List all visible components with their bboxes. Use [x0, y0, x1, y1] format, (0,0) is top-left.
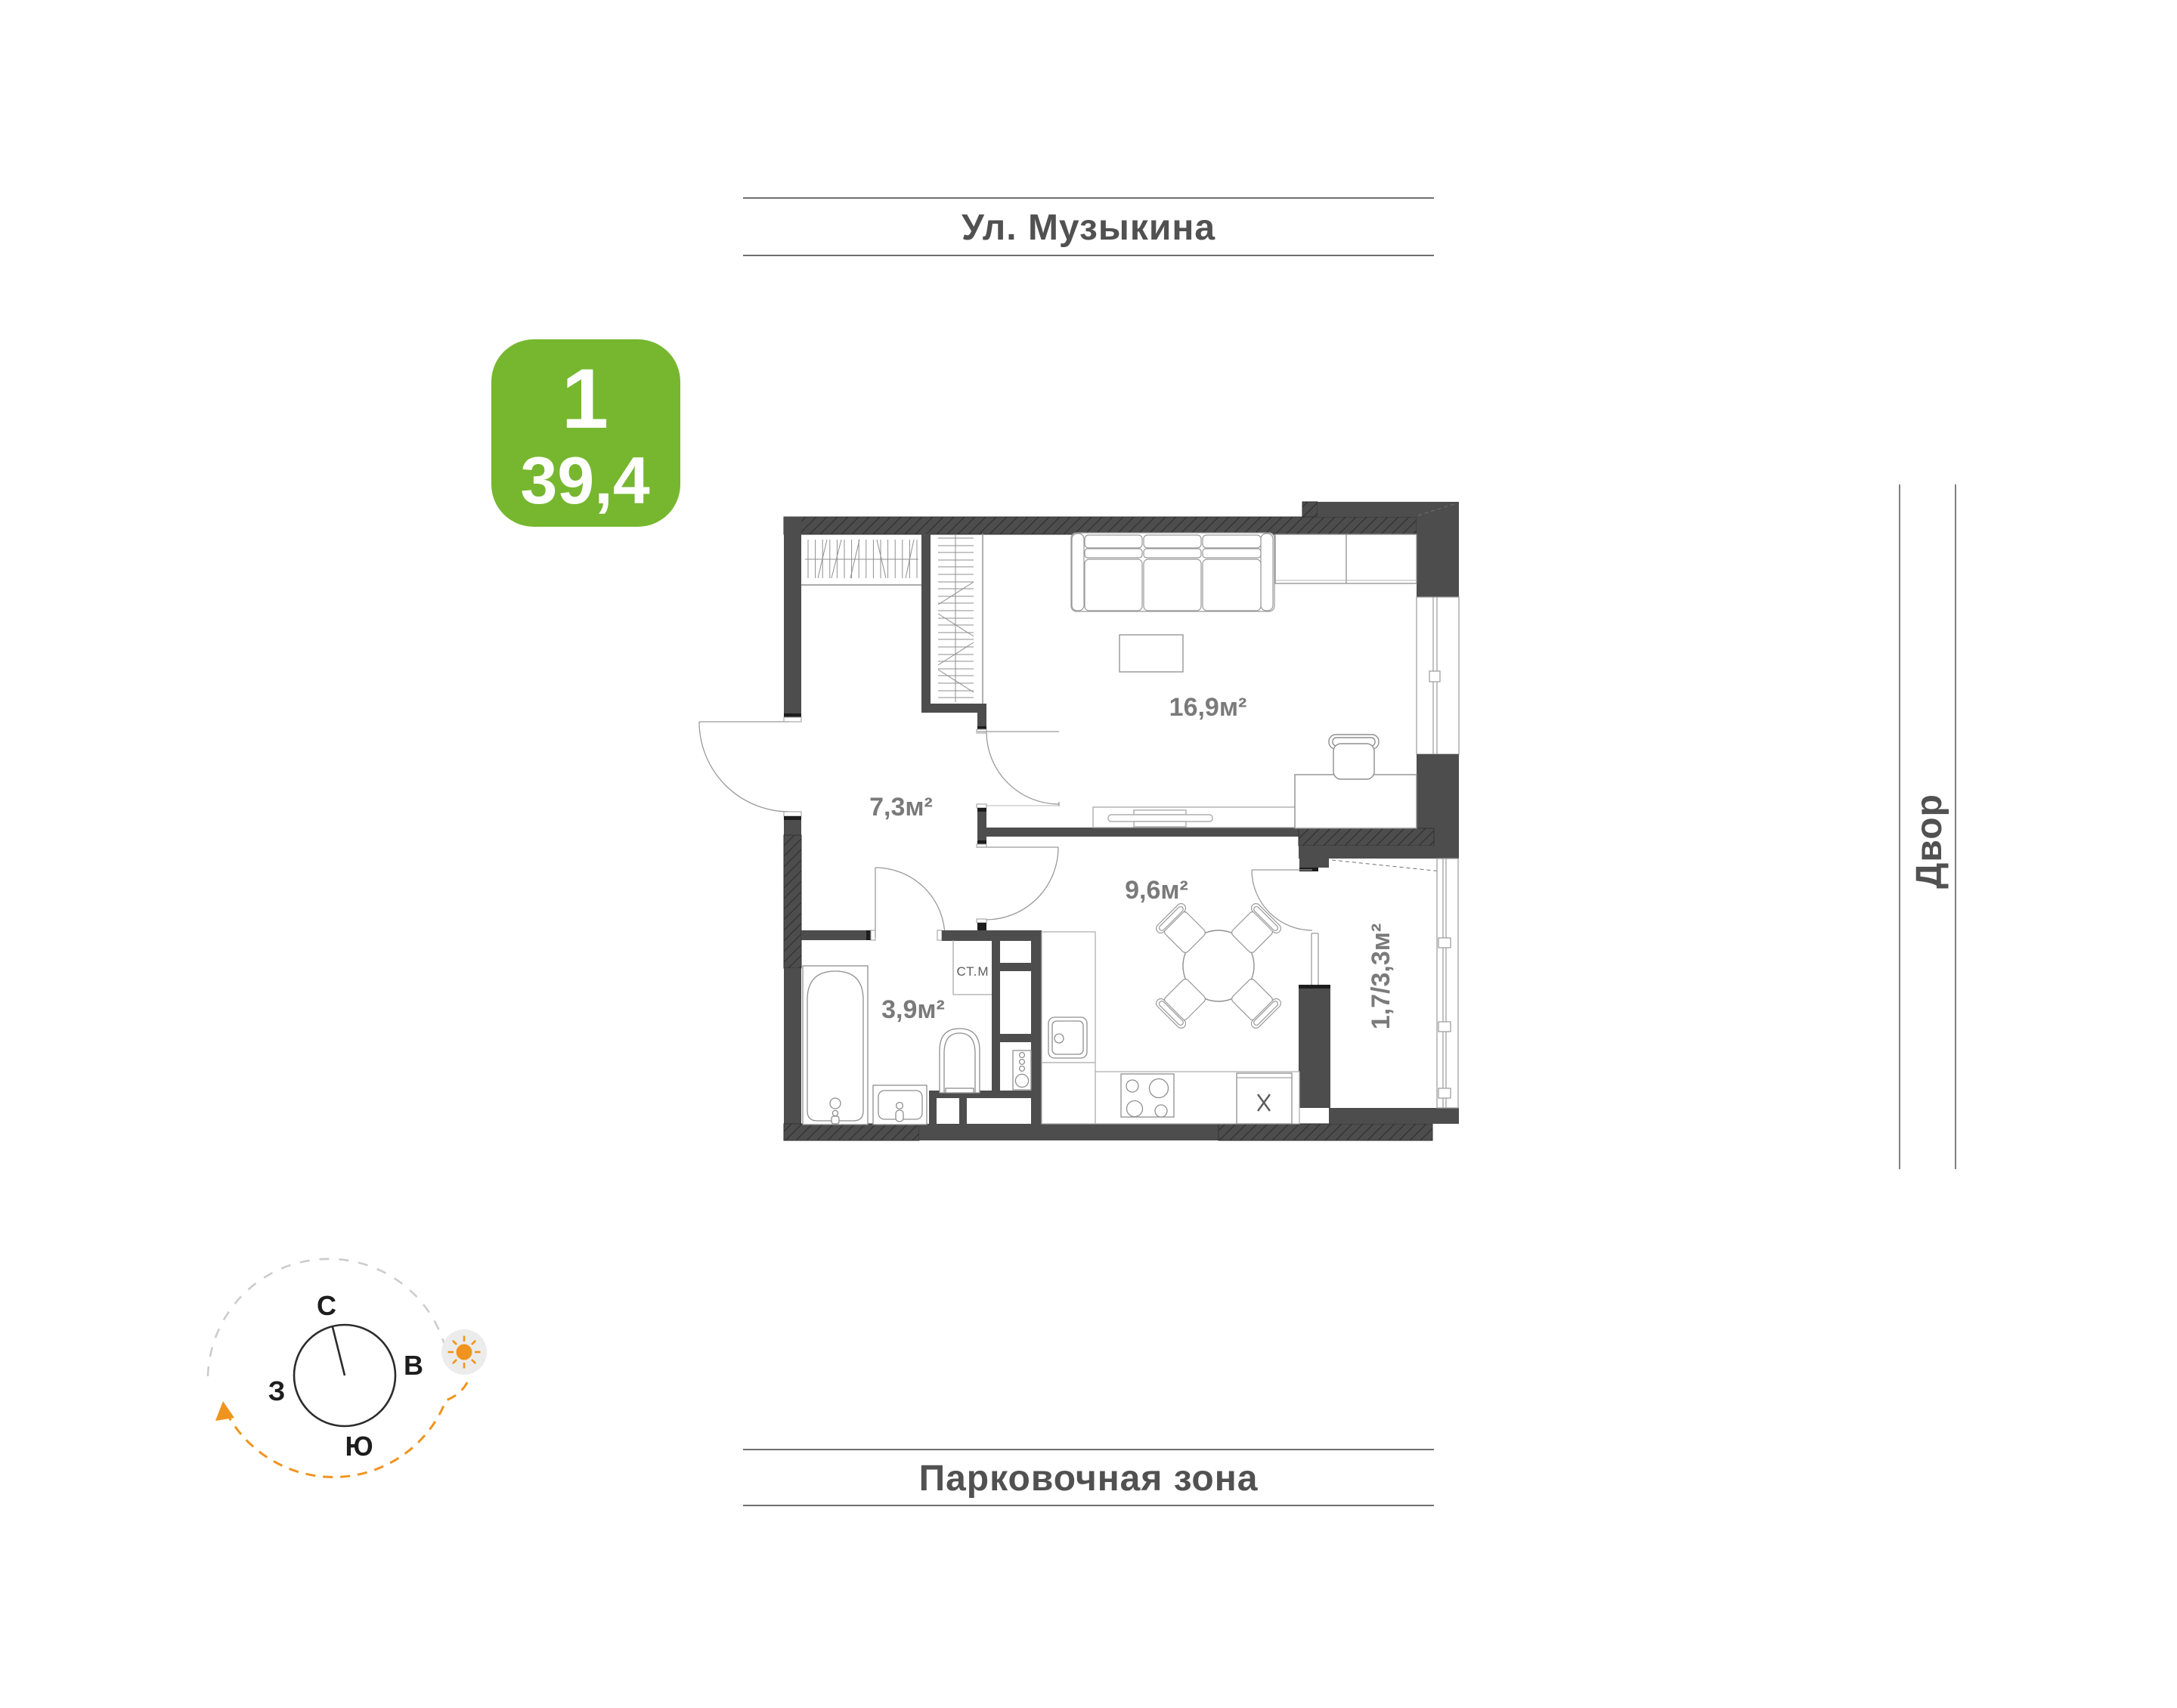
svg-text:9,6м²: 9,6м²: [1125, 876, 1188, 905]
svg-text:Ю: Ю: [345, 1431, 373, 1462]
svg-text:1,7/3,3м²: 1,7/3,3м²: [1367, 924, 1395, 1029]
svg-text:Двор: Двор: [1909, 794, 1949, 889]
svg-text:З: З: [268, 1375, 286, 1406]
svg-text:1: 1: [562, 351, 609, 446]
svg-text:7,3м²: 7,3м²: [869, 793, 933, 822]
svg-text:39,4: 39,4: [520, 443, 649, 518]
svg-text:3,9м²: 3,9м²: [881, 995, 945, 1024]
svg-text:16,9м²: 16,9м²: [1169, 693, 1247, 722]
svg-text:СТ.М: СТ.М: [956, 964, 989, 979]
svg-text:В: В: [404, 1350, 423, 1381]
svg-text:С: С: [317, 1290, 336, 1321]
svg-text:Парковочная зона: Парковочная зона: [919, 1459, 1259, 1499]
svg-text:Ул. Музыкина: Ул. Музыкина: [962, 208, 1215, 248]
